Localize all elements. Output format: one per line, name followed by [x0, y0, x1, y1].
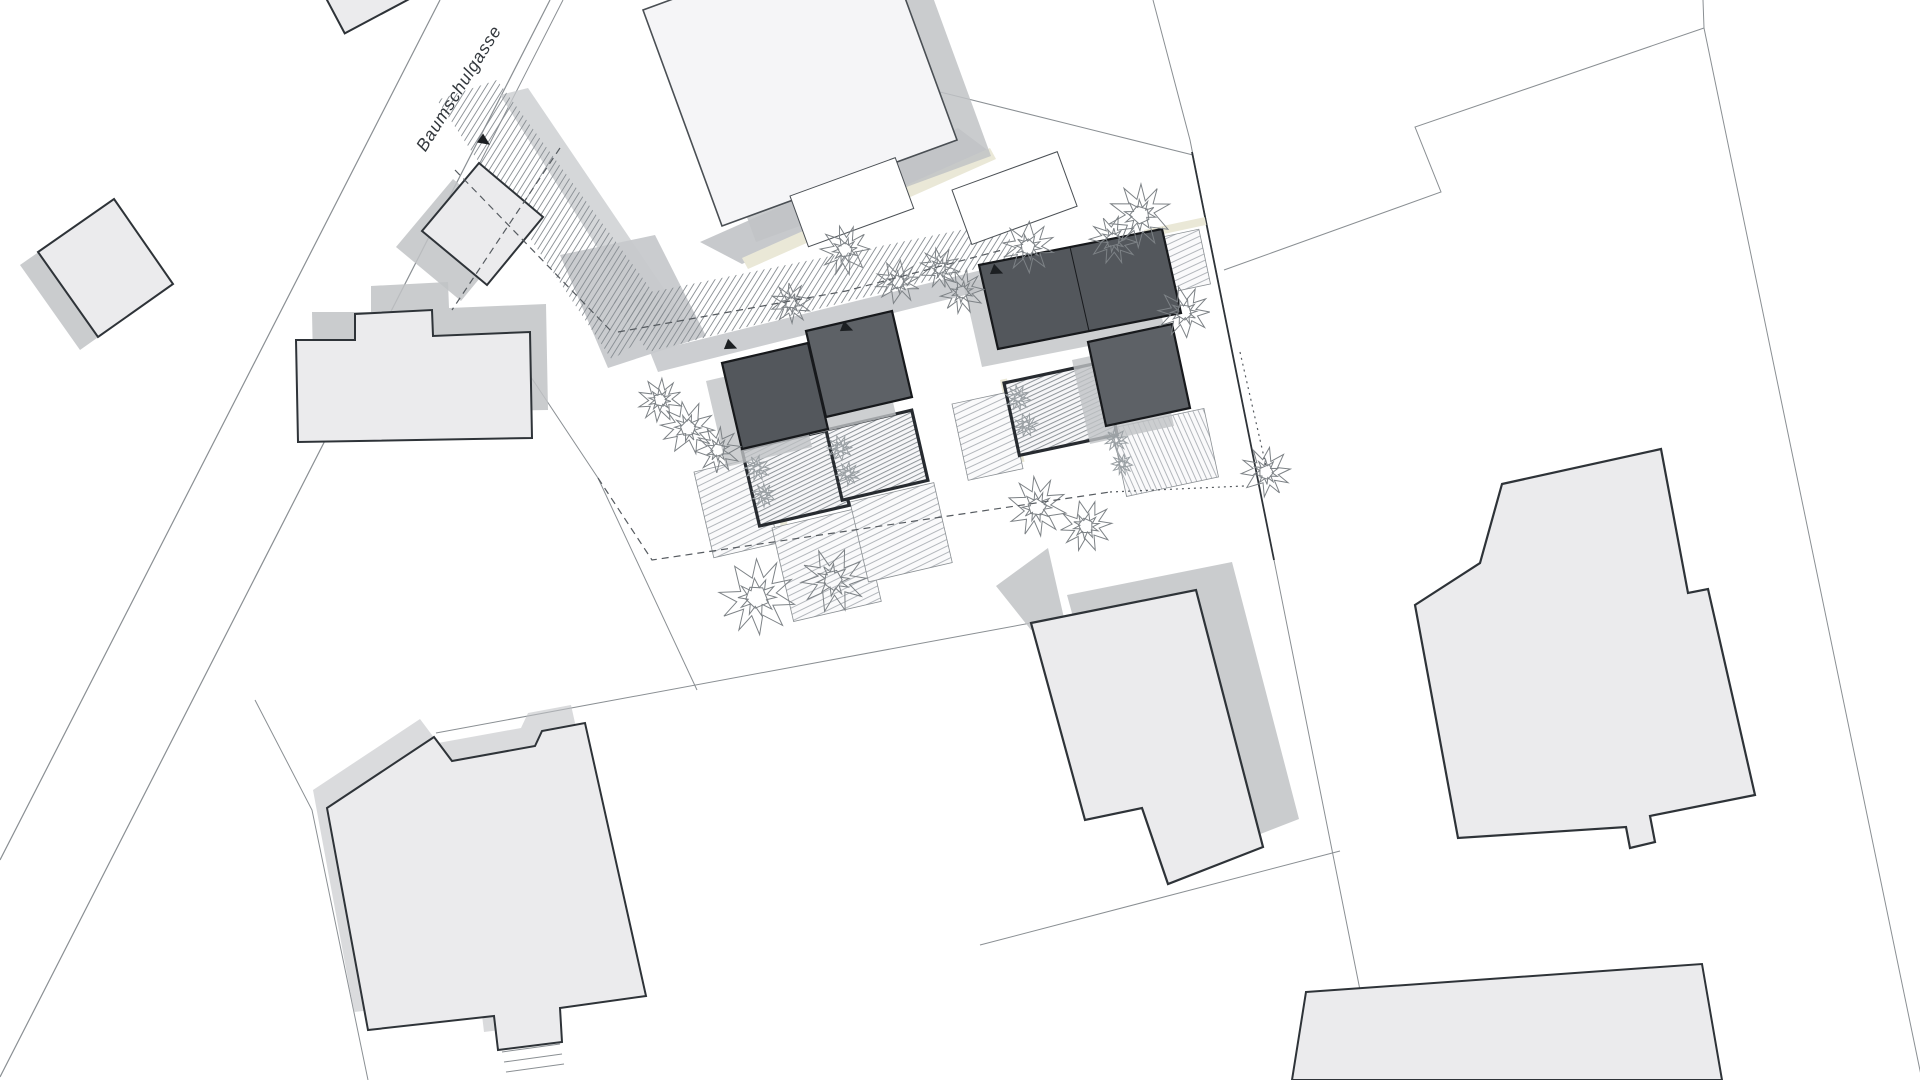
site-plan: Baumschulgasse — [0, 0, 1920, 1080]
parcel-line-northeast — [1224, 0, 1704, 270]
parcel-line-east-long — [1153, 0, 1378, 1080]
new-roof-ne — [806, 311, 912, 417]
parcel-line-south — [436, 623, 1031, 733]
building-right-large — [1415, 449, 1755, 848]
site-plan-svg — [0, 0, 1920, 1080]
new-roof-se — [1088, 324, 1190, 426]
porch-step-2 — [504, 1054, 562, 1062]
tree-icon — [631, 371, 690, 430]
porch-step-3 — [506, 1064, 564, 1072]
tree-icon — [1231, 437, 1300, 506]
building-top-left-corner — [310, 0, 430, 33]
parcel-line-far-east — [1704, 28, 1920, 1080]
tree-icon — [1055, 495, 1118, 558]
parcel-line-mid-south — [598, 478, 697, 690]
parcel-line-south-east — [980, 851, 1340, 945]
site-boundary-east — [1192, 152, 1274, 560]
building-bottom-center — [1292, 964, 1722, 1080]
garden-strip-l3 — [850, 483, 952, 582]
